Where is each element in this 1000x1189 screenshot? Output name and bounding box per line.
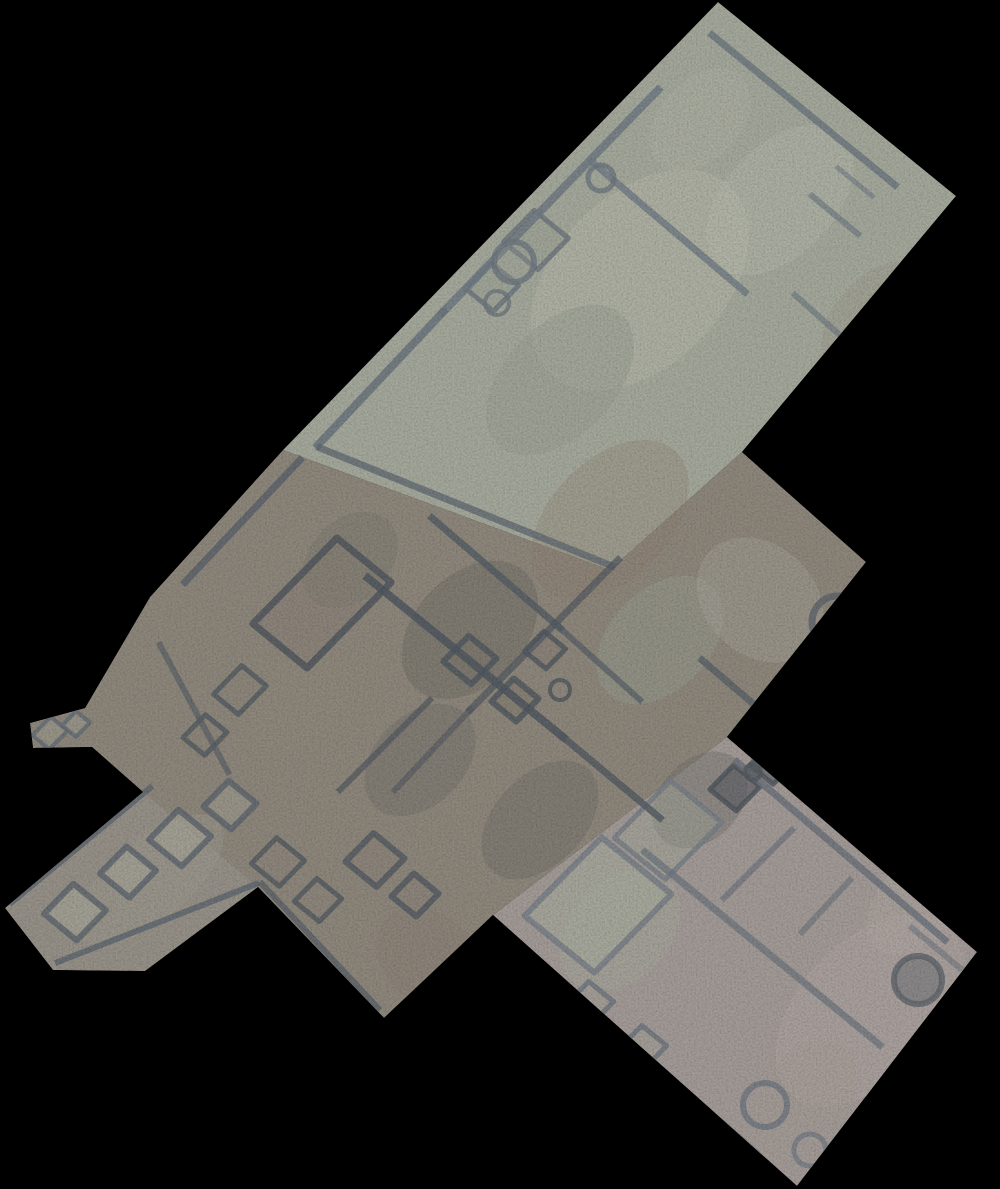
orthophoto-canvas [0, 0, 1000, 1189]
orthophoto-svg [0, 0, 1000, 1189]
